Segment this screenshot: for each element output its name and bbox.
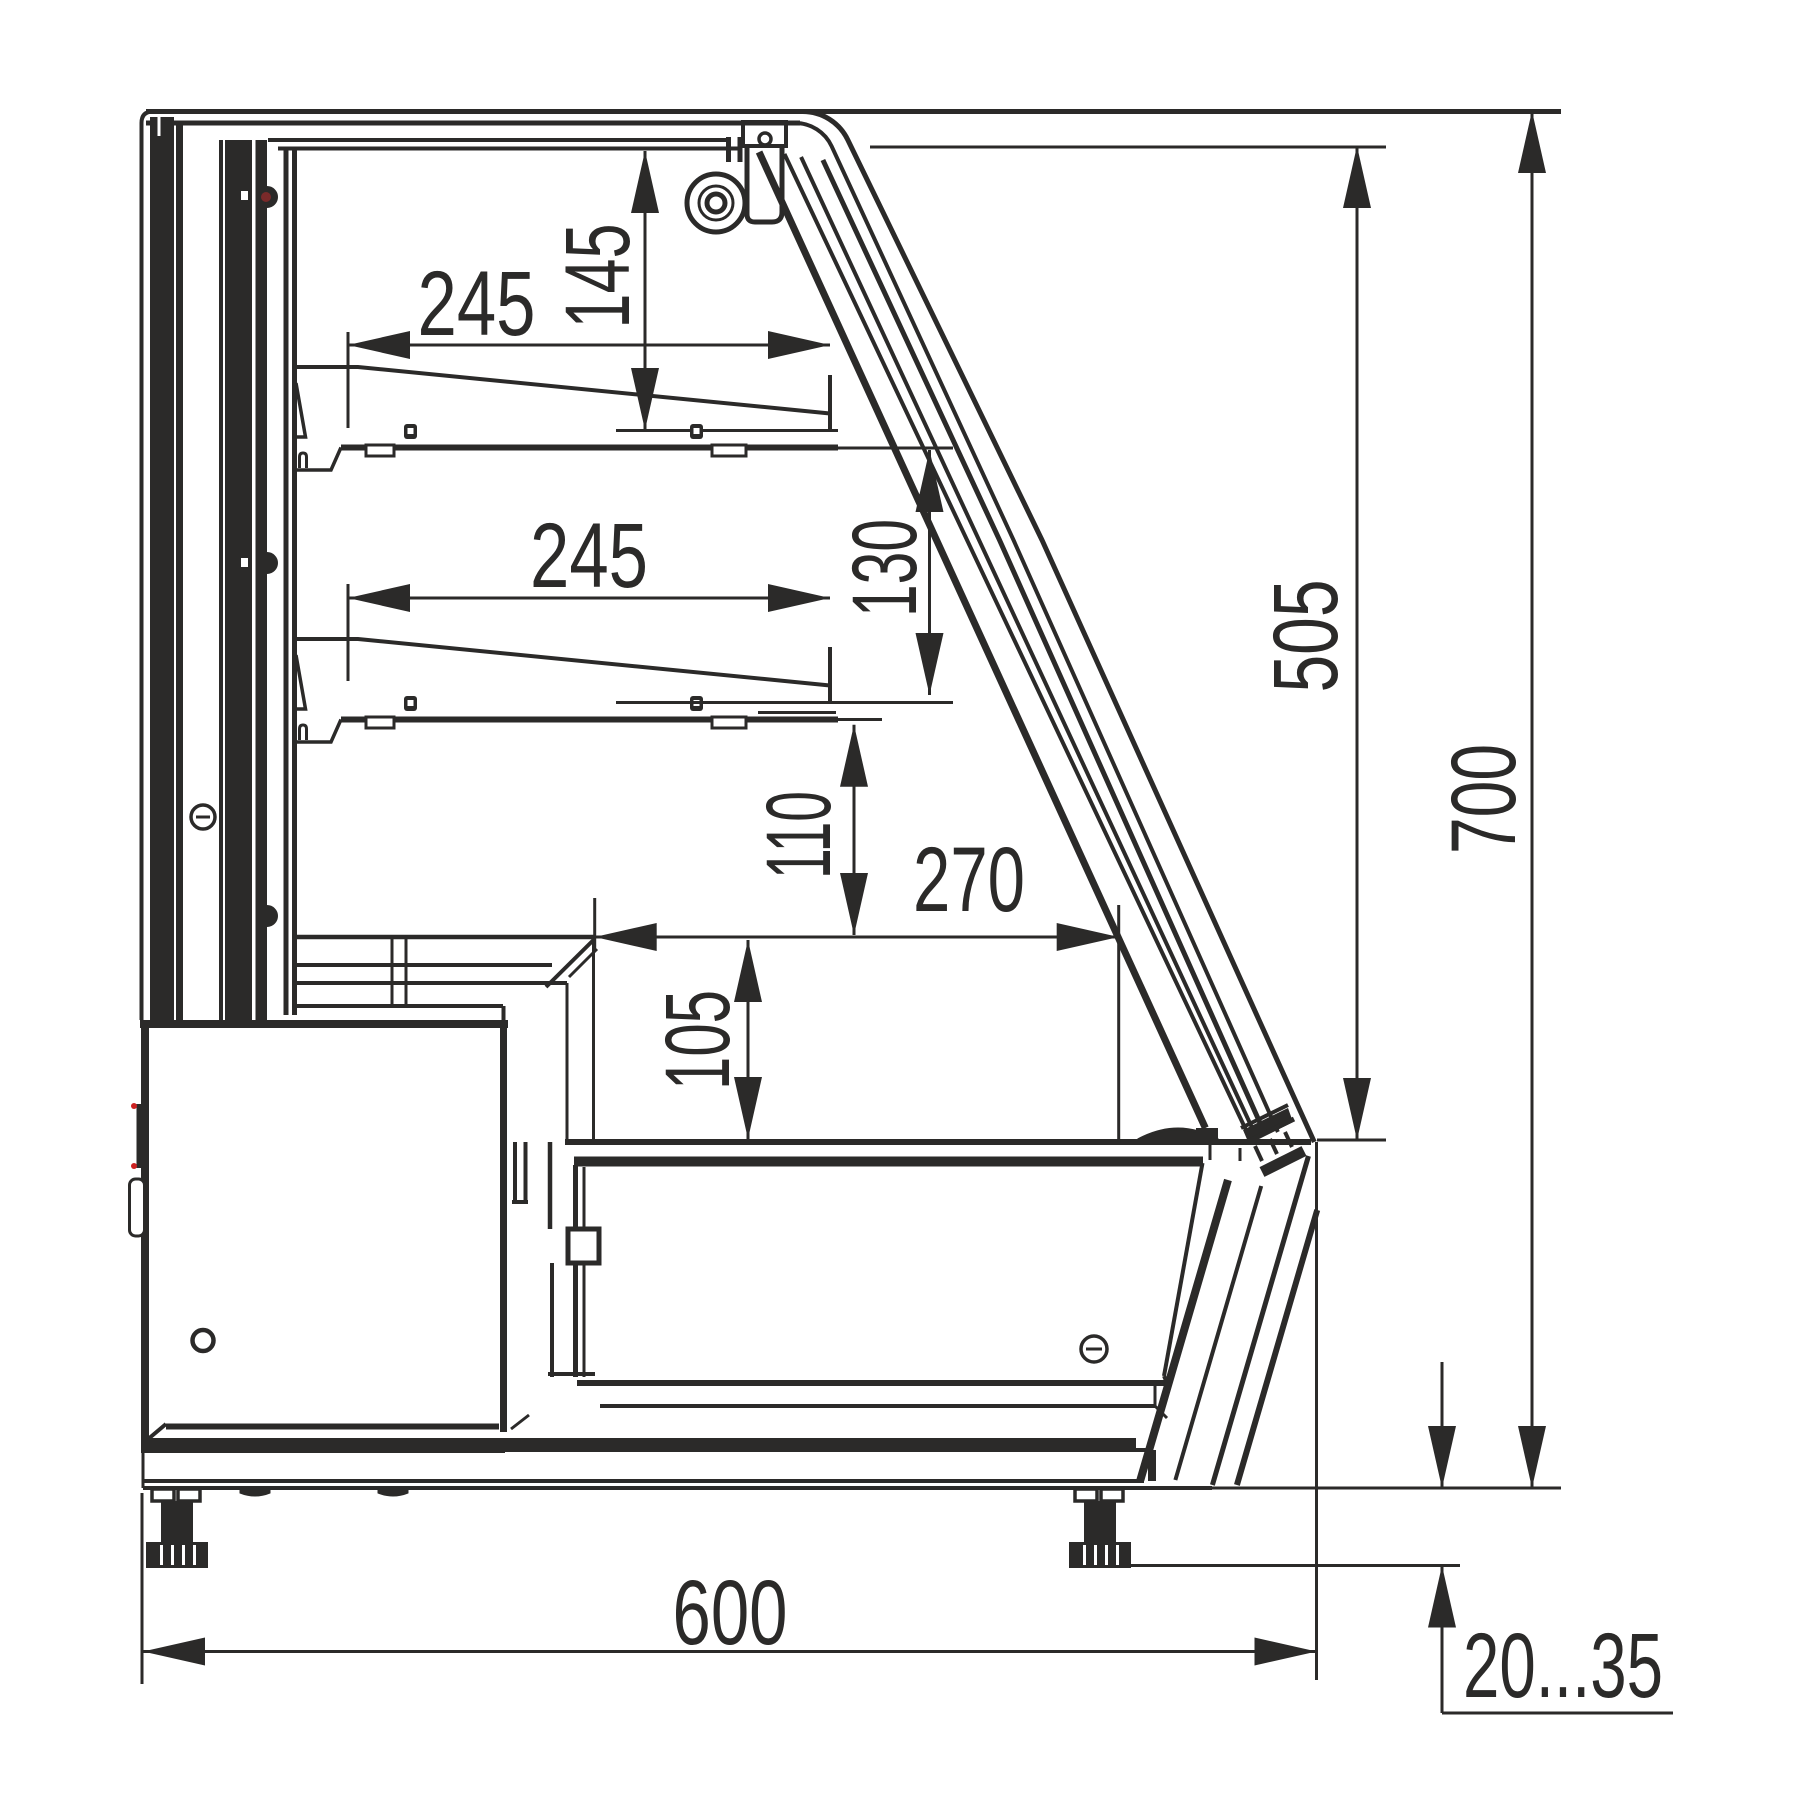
svg-text:145: 145: [547, 224, 649, 329]
svg-text:600: 600: [673, 1562, 788, 1664]
svg-text:245: 245: [418, 253, 536, 355]
svg-text:110: 110: [748, 791, 850, 879]
svg-text:505: 505: [1255, 580, 1357, 693]
svg-text:130: 130: [834, 519, 936, 617]
svg-text:105: 105: [647, 990, 749, 1090]
svg-text:20...35: 20...35: [1463, 1615, 1663, 1717]
svg-text:270: 270: [913, 829, 1025, 931]
svg-text:245: 245: [530, 505, 648, 607]
svg-text:700: 700: [1433, 744, 1535, 854]
